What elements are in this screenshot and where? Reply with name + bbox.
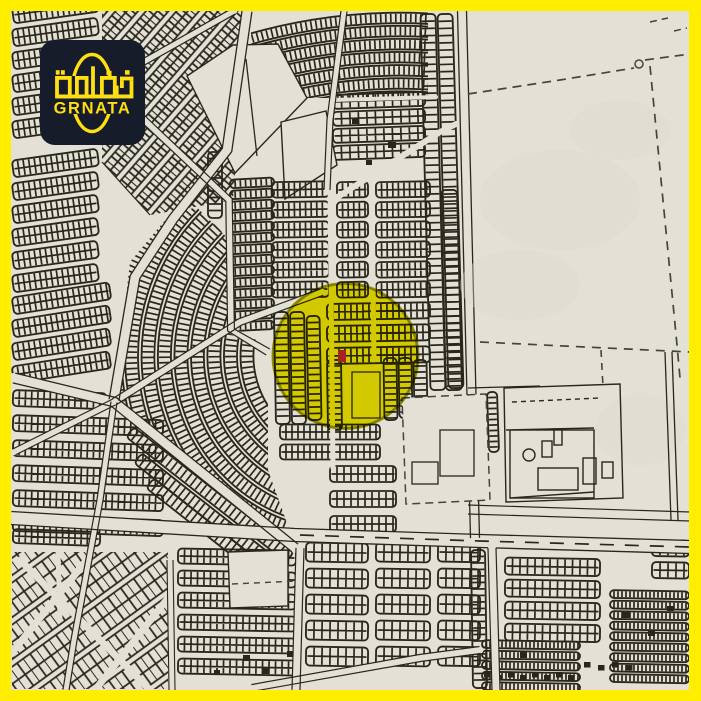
svg-text:GRNATA: GRNATA <box>54 100 132 118</box>
